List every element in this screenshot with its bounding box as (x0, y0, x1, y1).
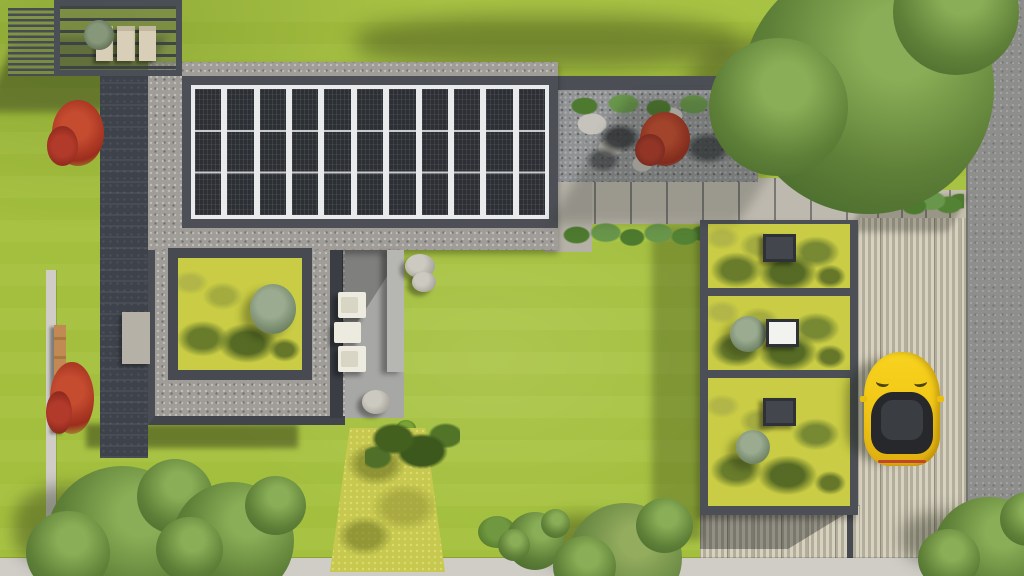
patio-low-wall (387, 250, 404, 372)
roof-garden-tree (250, 284, 296, 334)
side-table (334, 322, 361, 343)
solar-panel-column (454, 89, 480, 215)
solar-panel-column (519, 89, 545, 215)
solar-panel-column (292, 89, 318, 215)
outbuilding-west-shadow (652, 226, 702, 540)
solar-panel-column (195, 89, 221, 215)
yellow-sports-car (864, 352, 940, 466)
solar-panel-column (357, 89, 383, 215)
patio-boulder (362, 390, 390, 414)
sun-lounger (117, 26, 134, 61)
west-dark-paving (100, 70, 148, 458)
tree-shadow-on-lawn (356, 16, 736, 68)
lounge-chair-1 (338, 292, 366, 318)
car-mirror-left (860, 396, 867, 402)
red-maple-south (50, 362, 94, 434)
garden-boulder-2 (412, 272, 436, 292)
roof-garden-frame (168, 248, 312, 380)
green-roof-tree-2 (736, 430, 770, 464)
green-roof-section-2 (708, 296, 850, 370)
green-roof-outbuilding (700, 220, 858, 515)
solar-panel-column (227, 89, 253, 215)
skylight-2 (766, 319, 799, 347)
solar-panel-column (389, 89, 415, 215)
green-roof-section-1 (708, 224, 850, 288)
red-maple-north (52, 100, 104, 166)
solar-panel-column (260, 89, 286, 215)
car-mirror-right (937, 396, 944, 402)
green-roof-tree (730, 316, 766, 352)
solar-panel-column (486, 89, 512, 215)
aerial-site-plan (0, 0, 1024, 576)
north-wing-gravel-roof (148, 62, 558, 250)
sun-lounger (139, 26, 156, 61)
car-taillight-bar (878, 460, 926, 463)
pergola-plant (84, 20, 114, 50)
meadow-bushes (365, 414, 460, 476)
car-windshield-roof (871, 392, 933, 454)
solar-panel-column (422, 89, 448, 215)
solar-panel-column (324, 89, 350, 215)
lounge-chair-2 (338, 346, 366, 372)
green-roof-section-3 (708, 378, 850, 506)
pergola (54, 0, 182, 76)
skylight-1 (763, 234, 796, 262)
pergola-louver-screen (8, 8, 56, 76)
west-porch-pad (122, 312, 150, 364)
shrub-bed (562, 220, 708, 250)
skylight-3 (763, 398, 796, 426)
solar-array (182, 76, 558, 228)
